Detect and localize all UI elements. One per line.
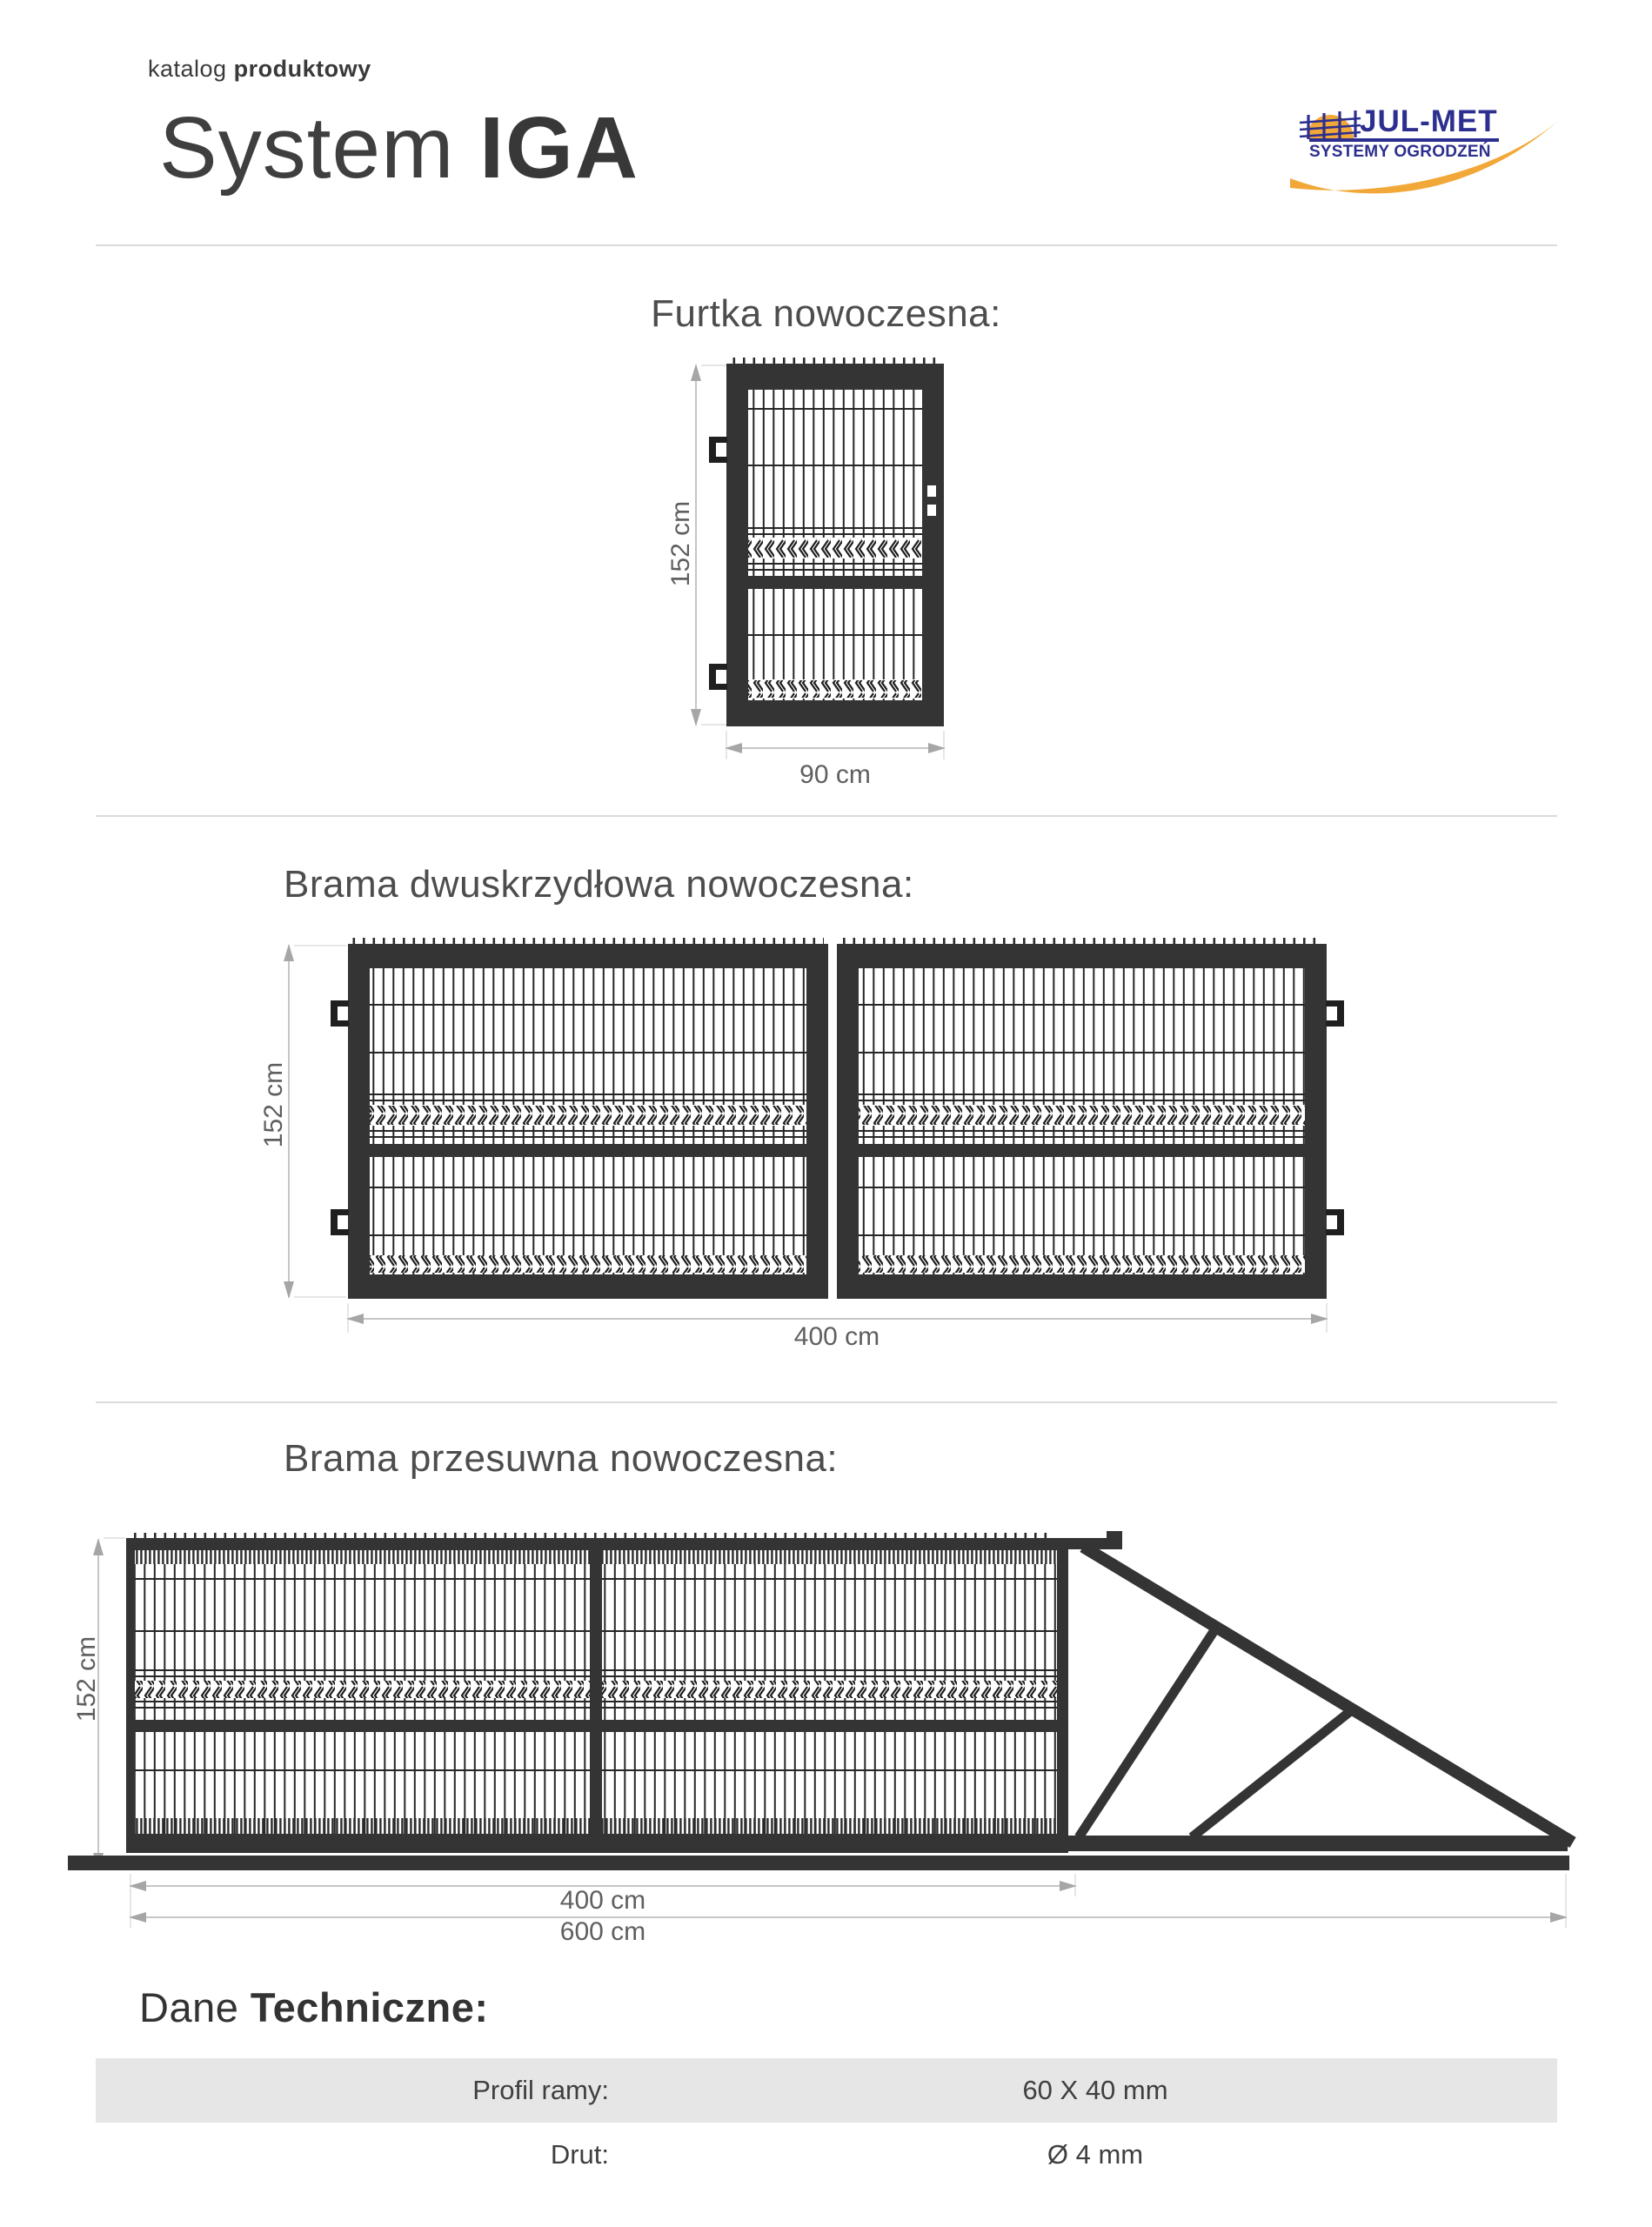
page-title-bold: IGA <box>479 99 639 197</box>
sliding-width-dimensions <box>129 1874 1568 1928</box>
separator-2 <box>96 1401 1557 1403</box>
separator-header <box>96 244 1557 246</box>
spec-value: Ø 4 mm <box>921 2123 1269 2187</box>
sun-fence-icon <box>1300 110 1361 139</box>
spec-row-profil: Profil ramy: 60 X 40 mm <box>96 2058 1557 2123</box>
furtka-width-dimension <box>725 731 946 759</box>
sliding-height-label: 152 cm <box>72 1621 102 1737</box>
spec-row-drut: Drut: Ø 4 mm <box>96 2123 1557 2187</box>
spec-label: Profil ramy: <box>96 2058 609 2123</box>
section-title-przesuwna: Brama przesuwna nowoczesna: <box>284 1437 838 1481</box>
spec-label: Drut: <box>96 2123 609 2187</box>
catalog-page: katalog produktowy System IGA JUL-MET SY… <box>0 0 1652 2227</box>
sliding-panel-width-label: 400 cm <box>536 1886 670 1916</box>
spec-value: 60 X 40 mm <box>921 2058 1269 2123</box>
furtka-hinges <box>709 437 727 690</box>
furtka-width-label: 90 cm <box>774 760 896 790</box>
logo-name: JUL-MET <box>1360 104 1498 139</box>
double-gate-diagram <box>261 922 1392 1366</box>
specs-heading: Dane Techniczne: <box>139 1983 489 2031</box>
double-left-hinges <box>331 1000 349 1235</box>
sliding-gate-diagram <box>52 1514 1618 1949</box>
sliding-gate-panel <box>126 1533 1068 1853</box>
furtka-height-label: 152 cm <box>666 485 696 602</box>
double-height-label: 152 cm <box>259 1047 289 1163</box>
specs-heading-light: Dane <box>139 1984 238 2030</box>
catalog-eyebrow: katalog produktowy <box>148 56 371 83</box>
furtka-diagram <box>661 348 1027 783</box>
sliding-gate-triangle <box>1068 1531 1573 1851</box>
sliding-total-width-label: 600 cm <box>536 1917 670 1947</box>
section-title-furtka: Furtka nowoczesna: <box>0 292 1652 336</box>
double-gate-left-leaf <box>331 938 828 1299</box>
double-right-hinges <box>1326 1000 1344 1235</box>
logo-underline <box>1309 138 1499 142</box>
double-width-label: 400 cm <box>770 1322 904 1352</box>
page-title-light: System <box>159 99 454 197</box>
separator-1 <box>96 815 1557 817</box>
specs-heading-bold: Techniczne: <box>251 1984 489 2030</box>
eyebrow-light: katalog <box>148 56 227 82</box>
sliding-gate-rail <box>68 1856 1569 1870</box>
page-title: System IGA <box>159 103 639 194</box>
eyebrow-bold: produktowy <box>234 56 371 82</box>
double-height-dimension <box>284 944 346 1299</box>
double-gate-right-leaf <box>837 938 1344 1299</box>
logo-tagline: SYSTEMY OGRODZEŃ <box>1309 143 1501 162</box>
furtka-gate <box>709 358 944 726</box>
section-title-dwuskrzydlowa: Brama dwuskrzydłowa nowoczesna: <box>284 863 914 906</box>
